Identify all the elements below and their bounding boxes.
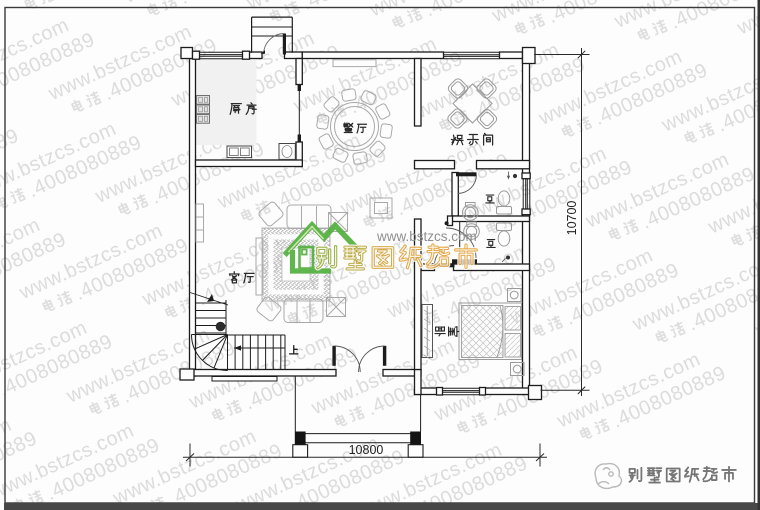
svg-text:10700: 10700 — [565, 201, 579, 236]
svg-text:10800: 10800 — [349, 443, 384, 457]
svg-text:www.bstzcs.com: www.bstzcs.com — [376, 229, 477, 244]
